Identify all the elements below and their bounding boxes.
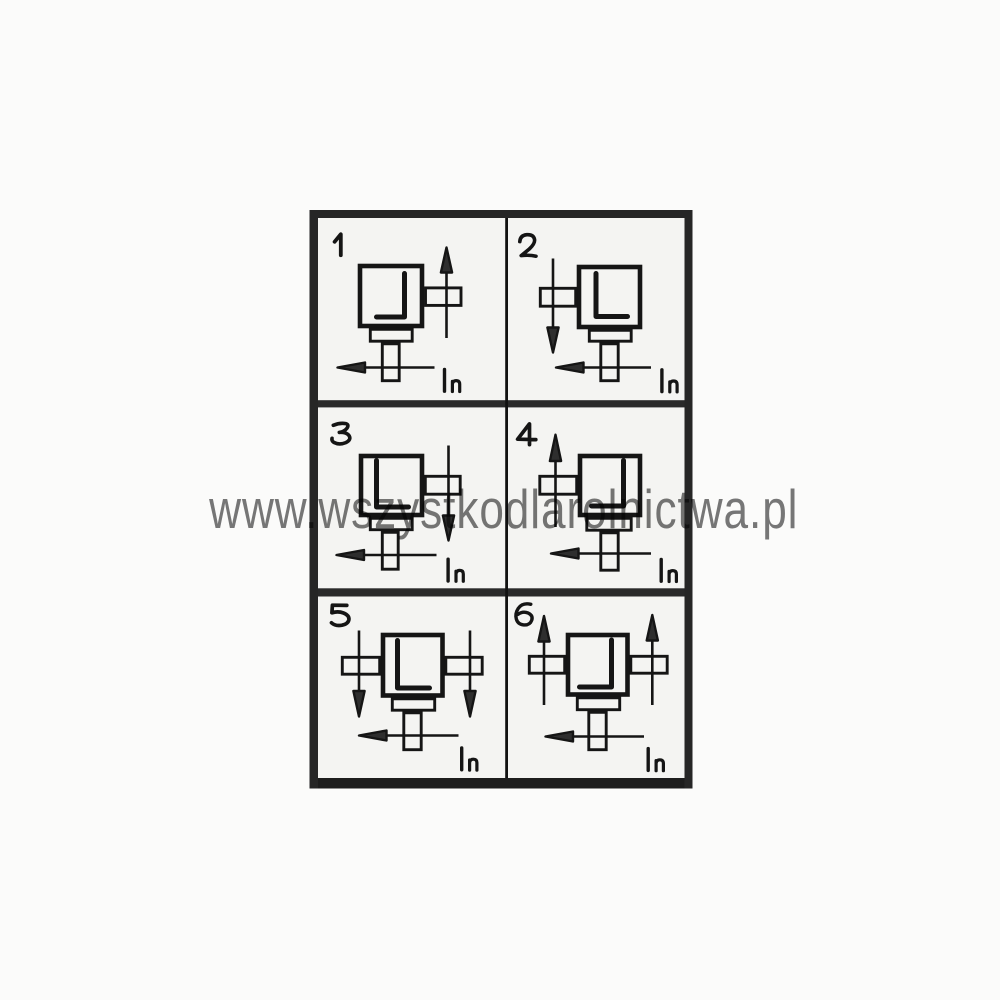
svg-text:www.wszystkodlarolnictwa.pl: www.wszystkodlarolnictwa.pl — [208, 479, 798, 541]
